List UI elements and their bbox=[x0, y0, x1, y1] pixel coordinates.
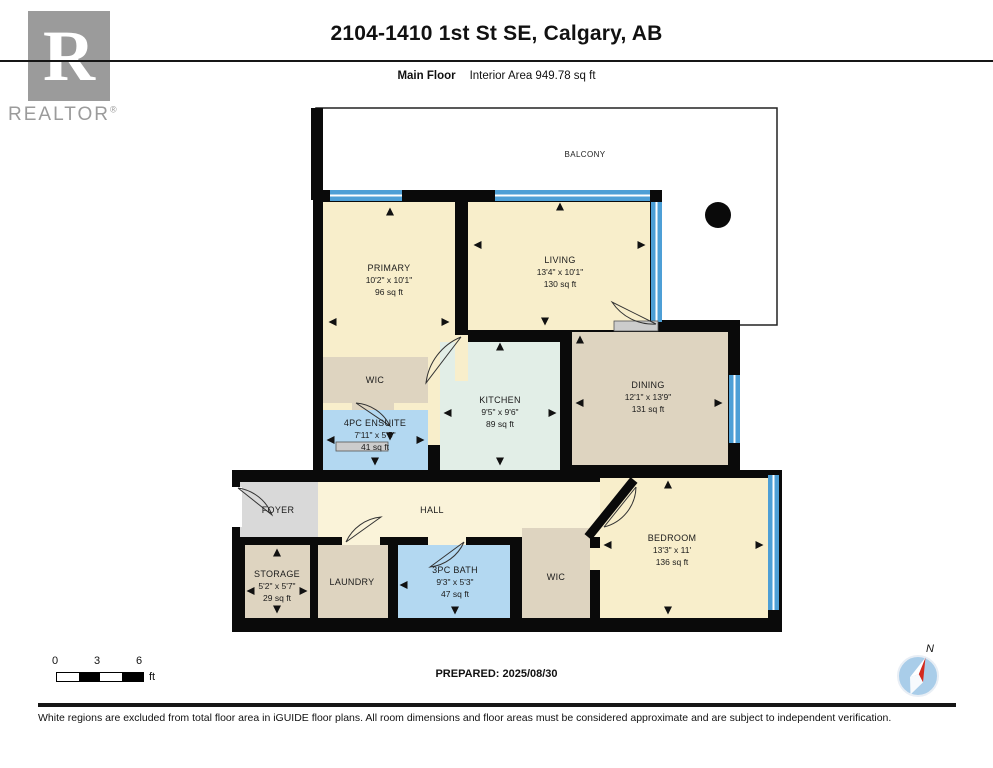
svg-text:136 sq ft: 136 sq ft bbox=[656, 557, 689, 567]
svg-text:89 sq ft: 89 sq ft bbox=[486, 419, 515, 429]
svg-text:FOYER: FOYER bbox=[262, 505, 295, 515]
svg-text:41 sq ft: 41 sq ft bbox=[361, 442, 390, 452]
svg-text:7'11" x 5'5": 7'11" x 5'5" bbox=[354, 430, 395, 440]
disclaimer-text: White regions are excluded from total fl… bbox=[38, 712, 968, 724]
svg-text:131 sq ft: 131 sq ft bbox=[632, 404, 665, 414]
svg-text:13'4" x 10'1": 13'4" x 10'1" bbox=[537, 267, 584, 277]
room-label-foyer: FOYER bbox=[262, 505, 295, 515]
room-label-hall: HALL bbox=[420, 505, 444, 515]
svg-text:PRIMARY: PRIMARY bbox=[368, 263, 411, 273]
svg-text:KITCHEN: KITCHEN bbox=[479, 395, 521, 405]
floorplan-page: R REALTOR® 2104-1410 1st St SE, Calgary,… bbox=[0, 0, 993, 768]
prepared-date: PREPARED: 2025/08/30 bbox=[0, 668, 993, 680]
svg-text:10'2" x 10'1": 10'2" x 10'1" bbox=[366, 275, 413, 285]
svg-text:5'2" x 5'7": 5'2" x 5'7" bbox=[258, 581, 295, 591]
svg-text:HALL: HALL bbox=[420, 505, 444, 515]
svg-text:BEDROOM: BEDROOM bbox=[648, 533, 697, 543]
svg-text:96 sq ft: 96 sq ft bbox=[375, 287, 404, 297]
svg-text:13'3" x 11': 13'3" x 11' bbox=[653, 545, 692, 555]
svg-text:WIC: WIC bbox=[547, 572, 566, 582]
svg-text:130 sq ft: 130 sq ft bbox=[544, 279, 577, 289]
floorplan-drawing: BALCONY PRIMARY 10'2" x 10'1" 96 sq ft L… bbox=[0, 95, 993, 645]
balcony-wall bbox=[311, 108, 323, 200]
svg-text:9'3" x 5'3": 9'3" x 5'3" bbox=[436, 577, 473, 587]
title-divider bbox=[0, 60, 993, 62]
svg-text:WIC: WIC bbox=[366, 375, 385, 385]
svg-text:LAUNDRY: LAUNDRY bbox=[330, 577, 375, 587]
room-label-laundry: LAUNDRY bbox=[330, 577, 375, 587]
svg-text:4PC ENSUITE: 4PC ENSUITE bbox=[344, 418, 406, 428]
room-living bbox=[468, 202, 650, 330]
floor-subtitle: Main FloorInterior Area 949.78 sq ft bbox=[0, 70, 993, 82]
svg-text:29 sq ft: 29 sq ft bbox=[263, 593, 292, 603]
floor-label: Main Floor bbox=[397, 70, 455, 82]
room-label-wic-top: WIC bbox=[366, 375, 385, 385]
svg-text:LIVING: LIVING bbox=[544, 255, 575, 265]
svg-text:3PC BATH: 3PC BATH bbox=[432, 565, 478, 575]
balcony-label: BALCONY bbox=[564, 150, 605, 159]
scale-tick-3: 3 bbox=[94, 655, 100, 667]
svg-text:DINING: DINING bbox=[631, 380, 664, 390]
support-column bbox=[705, 202, 731, 228]
compass: N bbox=[886, 638, 956, 702]
svg-text:47 sq ft: 47 sq ft bbox=[441, 589, 470, 599]
scale-tick-0: 0 bbox=[52, 655, 58, 667]
interior-area-label: Interior Area 949.78 sq ft bbox=[470, 70, 596, 82]
svg-text:12'1" x 13'9": 12'1" x 13'9" bbox=[625, 392, 672, 402]
scale-tick-6: 6 bbox=[136, 655, 142, 667]
page-title: 2104-1410 1st St SE, Calgary, AB bbox=[0, 22, 993, 46]
compass-north-label: N bbox=[926, 643, 934, 655]
footer-divider bbox=[38, 703, 956, 707]
svg-text:9'5" x 9'6": 9'5" x 9'6" bbox=[481, 407, 518, 417]
svg-text:STORAGE: STORAGE bbox=[254, 569, 300, 579]
room-label-wic-bottom: WIC bbox=[547, 572, 566, 582]
